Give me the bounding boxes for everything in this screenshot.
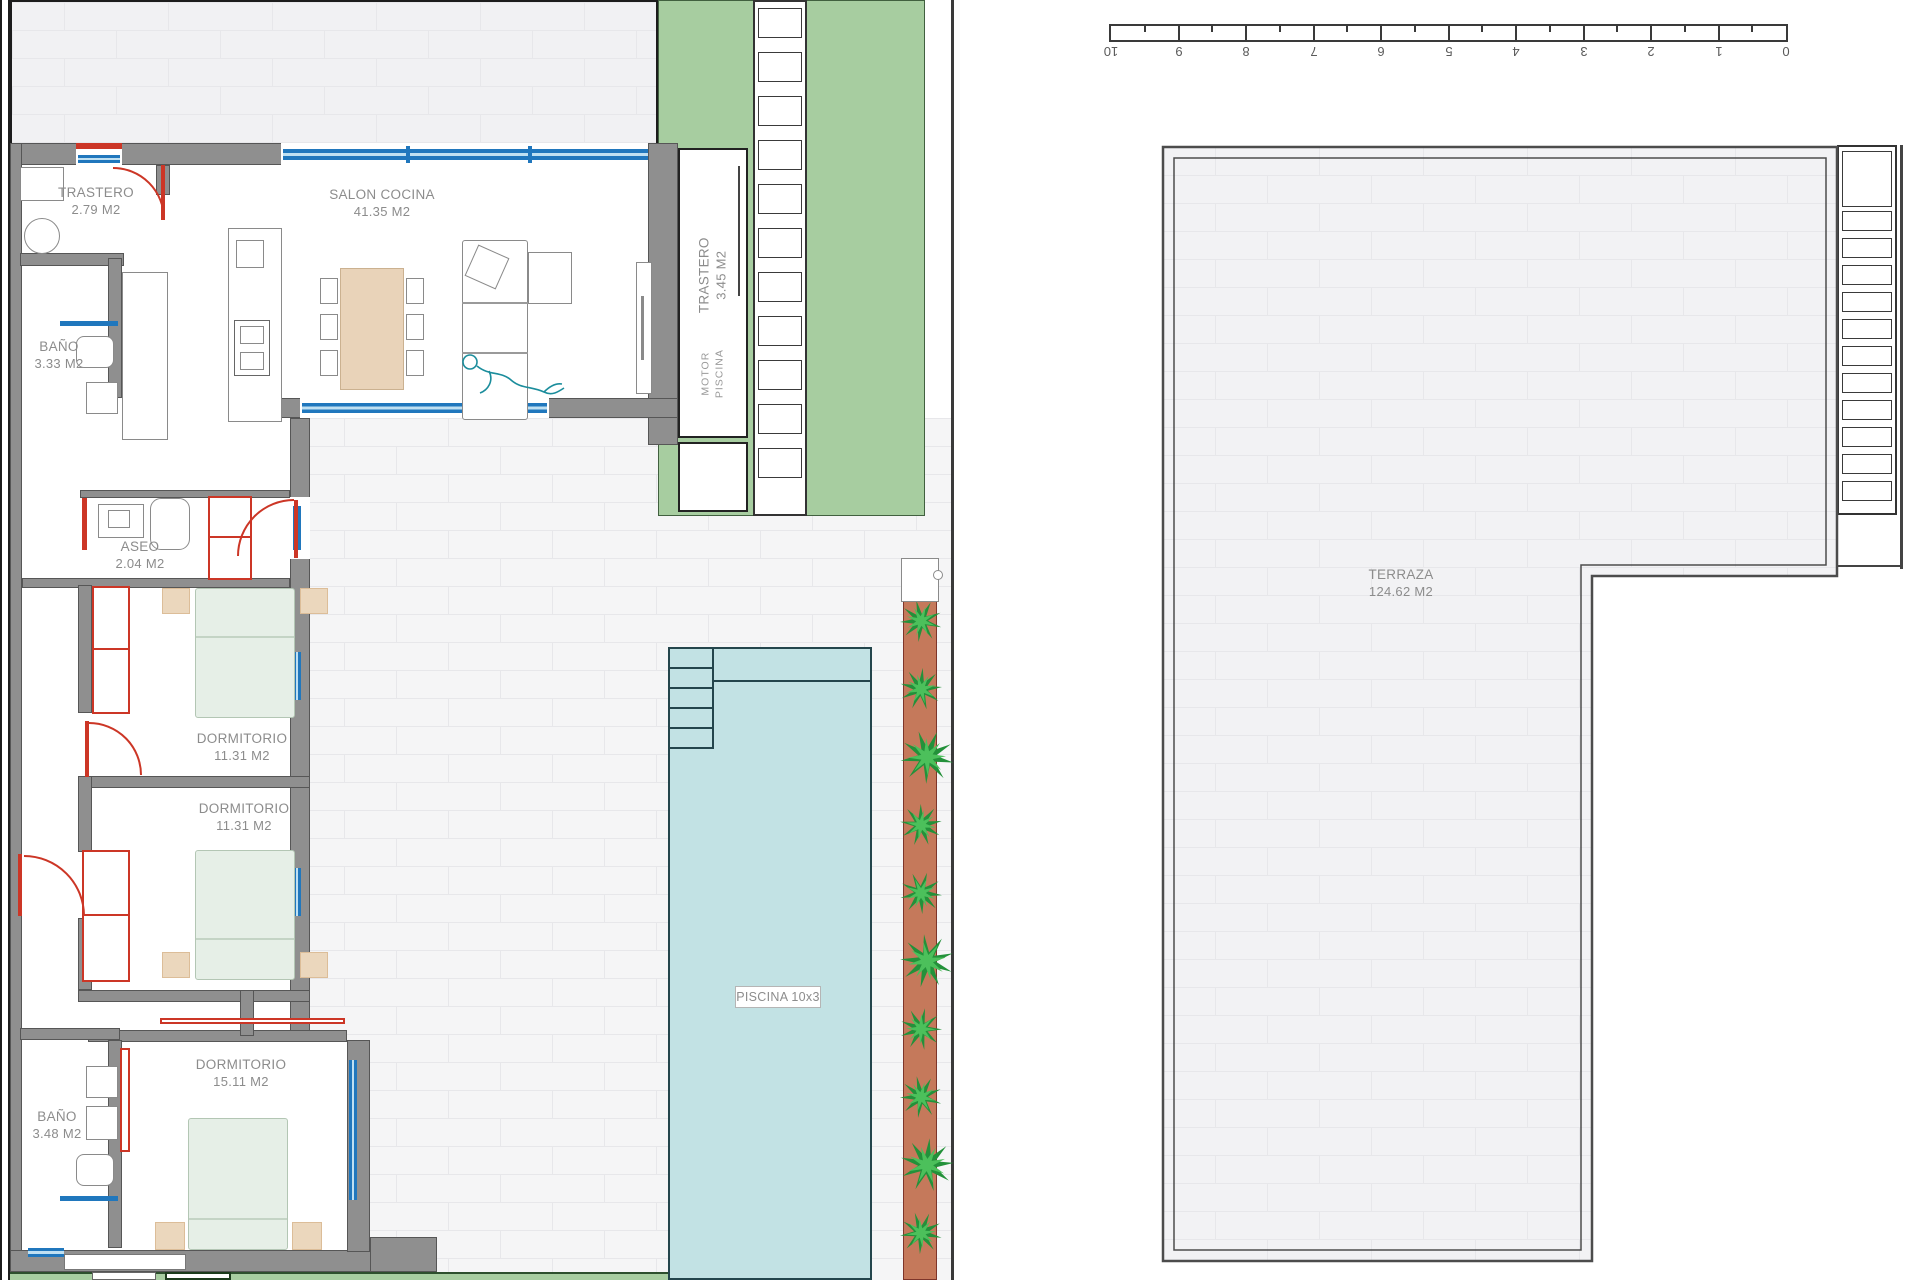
wall-bano1-east [108, 258, 122, 398]
bed3-fold [189, 1218, 287, 1220]
wall-left [10, 143, 22, 1272]
room-area: 2.04 M2 [90, 556, 190, 573]
scale-bar: 109876543210 [1109, 24, 1788, 42]
wall-pillar-bottom [370, 1237, 437, 1272]
scale-label: 7 [1310, 44, 1317, 59]
scale-label: 6 [1377, 44, 1384, 59]
dining-chair [406, 278, 424, 304]
terrace-stairs-return-v [1901, 513, 1903, 567]
room-area: 2.79 M2 [36, 202, 156, 219]
scale-label: 10 [1104, 44, 1118, 59]
room-area: 15.11 M2 [171, 1074, 311, 1091]
room-name: MOTOR PISCINA [699, 339, 726, 409]
door-leaf-bed3 [120, 1048, 130, 1152]
stair-tread [1842, 373, 1892, 393]
stair-tread [758, 448, 802, 478]
pool-label: PISCINA 10x3 [735, 986, 821, 1008]
room-name: TRASTERO [696, 237, 714, 313]
room-name: DORMITORIO [171, 1056, 311, 1074]
pool-step [668, 687, 714, 689]
terrace-stairs-rail [1900, 145, 1903, 569]
plant-icon [899, 803, 943, 847]
door-gap-south [64, 1254, 186, 1270]
room-name: TERRAZA [1301, 566, 1501, 584]
closet-aseo-shelf [210, 536, 250, 538]
scale-label: 9 [1175, 44, 1182, 59]
room-area: 3.33 M2 [14, 356, 104, 373]
motor-room [678, 442, 748, 512]
plant-icon [899, 871, 943, 915]
towel-rail-bano1 [60, 321, 118, 326]
scale-label: 1 [1715, 44, 1722, 59]
scale-tick-major [1718, 26, 1720, 40]
pool-step [668, 747, 714, 749]
nightstand [300, 588, 328, 614]
stair-tread [1842, 481, 1892, 501]
sofa-seam [462, 352, 528, 354]
scale-tick-half [1481, 26, 1483, 32]
stair-tread [1842, 427, 1892, 447]
window-bed3-east [349, 1060, 357, 1200]
nightstand [155, 1222, 185, 1250]
pool [668, 647, 872, 1280]
nightstand [162, 952, 190, 978]
room-label-bano2: BAÑO 3.48 M2 [12, 1108, 102, 1142]
door-leaf-bed2 [18, 854, 22, 916]
room-label-terraza: TERRAZA 124.62 M2 [1301, 566, 1501, 600]
dining-chair [406, 314, 424, 340]
dining-chair [320, 278, 338, 304]
scale-label: 4 [1512, 44, 1519, 59]
bed-dormitorio3 [188, 1118, 288, 1250]
scale-label: 8 [1242, 44, 1249, 59]
stair-tread [1842, 346, 1892, 366]
dining-chair [320, 350, 338, 376]
bed2-fold [196, 938, 294, 940]
scale-tick-major [1245, 26, 1247, 40]
plant-icon [899, 1075, 943, 1119]
water-heater [24, 218, 60, 254]
nightstand [162, 588, 190, 614]
window-mullion [528, 146, 532, 163]
wall-bed1-bed2 [78, 776, 310, 788]
plot-boundary-right [951, 0, 954, 1280]
stair-tread [758, 272, 802, 302]
stair-tread [758, 360, 802, 390]
towel-rail-bano2 [60, 1196, 118, 1201]
tv-screen [641, 296, 644, 360]
room-label-motor: MOTOR PISCINA [678, 318, 748, 430]
wall-hallway-a [78, 585, 92, 713]
room-area: 3.48 M2 [12, 1126, 102, 1143]
south-strip-box [92, 1272, 156, 1280]
window-top-small [78, 155, 120, 163]
terrace-stairs-return-h [1837, 565, 1903, 567]
room-name: TRASTERO [36, 184, 156, 202]
kitchen-oven-door [240, 326, 264, 344]
scale-tick-major [1583, 26, 1585, 40]
room-label-dormitorio1: DORMITORIO 11.31 M2 [172, 730, 312, 764]
stair-tread [1842, 319, 1892, 339]
window-salon-north [283, 149, 653, 160]
room-label-dormitorio3: DORMITORIO 15.11 M2 [171, 1056, 311, 1090]
wall-bed3-north [88, 1030, 347, 1042]
stair-tread [1842, 211, 1892, 231]
kitchen-oven-drawer [240, 352, 264, 370]
nightstand [300, 952, 328, 978]
bed1-fold [196, 636, 294, 638]
plant-icon [899, 667, 943, 711]
door-leaf-aseo [82, 498, 87, 550]
scale-tick-half [1144, 26, 1146, 32]
scale-tick-major [1650, 26, 1652, 40]
room-area: 3.45 M2 [713, 237, 730, 313]
sink-aseo-basin [108, 510, 130, 528]
pool-step [668, 707, 714, 709]
front-patio [10, 0, 658, 145]
garden-stairs [753, 0, 807, 516]
closet-bed1-shelf [94, 648, 128, 650]
sofa-seam [462, 302, 528, 304]
room-area: 11.31 M2 [174, 818, 314, 835]
stair-tread [1842, 292, 1892, 312]
pool-step [668, 667, 714, 669]
plant-icon [899, 933, 955, 989]
scale-tick-half [1751, 26, 1753, 32]
stair-tread [758, 404, 802, 434]
room-name: BAÑO [12, 1108, 102, 1126]
window-mullion [406, 146, 410, 163]
sink-bano2 [86, 1066, 118, 1098]
wall-aseo-north [80, 490, 290, 498]
room-area: 11.31 M2 [172, 748, 312, 765]
scale-tick-major [1515, 26, 1517, 40]
terrace-stairs [1837, 145, 1897, 515]
door-leaf-bed1 [85, 721, 89, 777]
stair-tread [1842, 238, 1892, 258]
scale-tick-half [1684, 26, 1686, 32]
scale-label: 2 [1647, 44, 1654, 59]
stair-tread [758, 228, 802, 258]
stair-tread [1842, 265, 1892, 285]
plant-icon [899, 599, 943, 643]
tv-unit [636, 262, 652, 394]
stair-tread [758, 96, 802, 126]
door-leaf-salon [294, 500, 298, 558]
stair-tread [758, 140, 802, 170]
scale-tick-half [1211, 26, 1213, 32]
room-label-salon: SALON COCINA 41.35 M2 [302, 186, 462, 220]
plant-icon [899, 1211, 943, 1255]
toilet-bano2 [76, 1154, 114, 1186]
door-leaf-trastero1 [161, 165, 165, 220]
plant-icon [899, 1007, 943, 1051]
scale-label: 0 [1782, 44, 1789, 59]
dining-chair [320, 314, 338, 340]
wall-bed2-south [78, 990, 310, 1002]
floorplan-canvas: 109876543210 TRASTERO 2.79 M2 SALON COCI… [0, 0, 1920, 1280]
scale-label: 5 [1445, 44, 1452, 59]
planter-strip [903, 576, 937, 1280]
scale-tick-half [1549, 26, 1551, 32]
scale-tick-major [1178, 26, 1180, 40]
scale-tick-half [1346, 26, 1348, 32]
room-area: 124.62 M2 [1301, 584, 1501, 601]
kitchen-counter [122, 272, 168, 440]
wall-stub [240, 990, 254, 1036]
pool-label-text: PISCINA 10x3 [736, 989, 820, 1005]
sofa-chaise [528, 252, 572, 304]
planter-head-box [901, 558, 939, 602]
stair-tread [758, 8, 802, 38]
scale-label: 3 [1580, 44, 1587, 59]
closet-aseo [208, 496, 252, 580]
terrace-paving [1163, 147, 1837, 1261]
plant-icon [899, 1137, 955, 1193]
plant-icon [899, 729, 955, 785]
bed-dormitorio1 [195, 588, 295, 718]
room-label-dormitorio2: DORMITORIO 11.31 M2 [174, 800, 314, 834]
stair-tread [758, 52, 802, 82]
scale-tick-major [1380, 26, 1382, 40]
scale-tick-major [1448, 26, 1450, 40]
kitchen-sink [236, 240, 264, 268]
wall-bano2-north [20, 1028, 120, 1040]
planter-valve [933, 570, 943, 580]
stair-landing [1842, 151, 1892, 207]
room-name: ASEO [90, 538, 190, 556]
closet-bed1 [92, 586, 130, 714]
dining-chair [406, 350, 424, 376]
pool-steps-rail [712, 647, 714, 749]
window-bano2-south [28, 1248, 64, 1257]
room-name: DORMITORIO [172, 730, 312, 748]
room-name: SALON COCINA [302, 186, 462, 204]
stair-tread [1842, 400, 1892, 420]
room-name: DORMITORIO [174, 800, 314, 818]
room-label-aseo: ASEO 2.04 M2 [90, 538, 190, 572]
bed-dormitorio2 [195, 850, 295, 980]
wall-hallway-b [78, 776, 92, 852]
stair-tread [1842, 454, 1892, 474]
scale-tick-half [1616, 26, 1618, 32]
nightstand [292, 1222, 322, 1250]
scale-tick-half [1414, 26, 1416, 32]
plot-boundary-left [0, 0, 10, 1280]
room-label-trastero1: TRASTERO 2.79 M2 [36, 184, 156, 218]
door-leaf-bed3-open [160, 1018, 345, 1024]
scale-tick-half [1279, 26, 1281, 32]
room-area: 41.35 M2 [302, 204, 462, 221]
scale-tick-major [1313, 26, 1315, 40]
dining-table [340, 268, 404, 390]
south-strip-box-dark [165, 1272, 231, 1280]
pool-ledge [714, 680, 870, 682]
stair-tread [758, 316, 802, 346]
room-name: BAÑO [14, 338, 104, 356]
closet-bed2 [82, 850, 130, 982]
pool-step [668, 727, 714, 729]
window-lintel [76, 143, 122, 149]
room-label-bano1: BAÑO 3.33 M2 [14, 338, 104, 372]
sink-bano1 [86, 382, 118, 414]
stair-tread [758, 184, 802, 214]
closet-bed2-shelf [84, 914, 128, 916]
